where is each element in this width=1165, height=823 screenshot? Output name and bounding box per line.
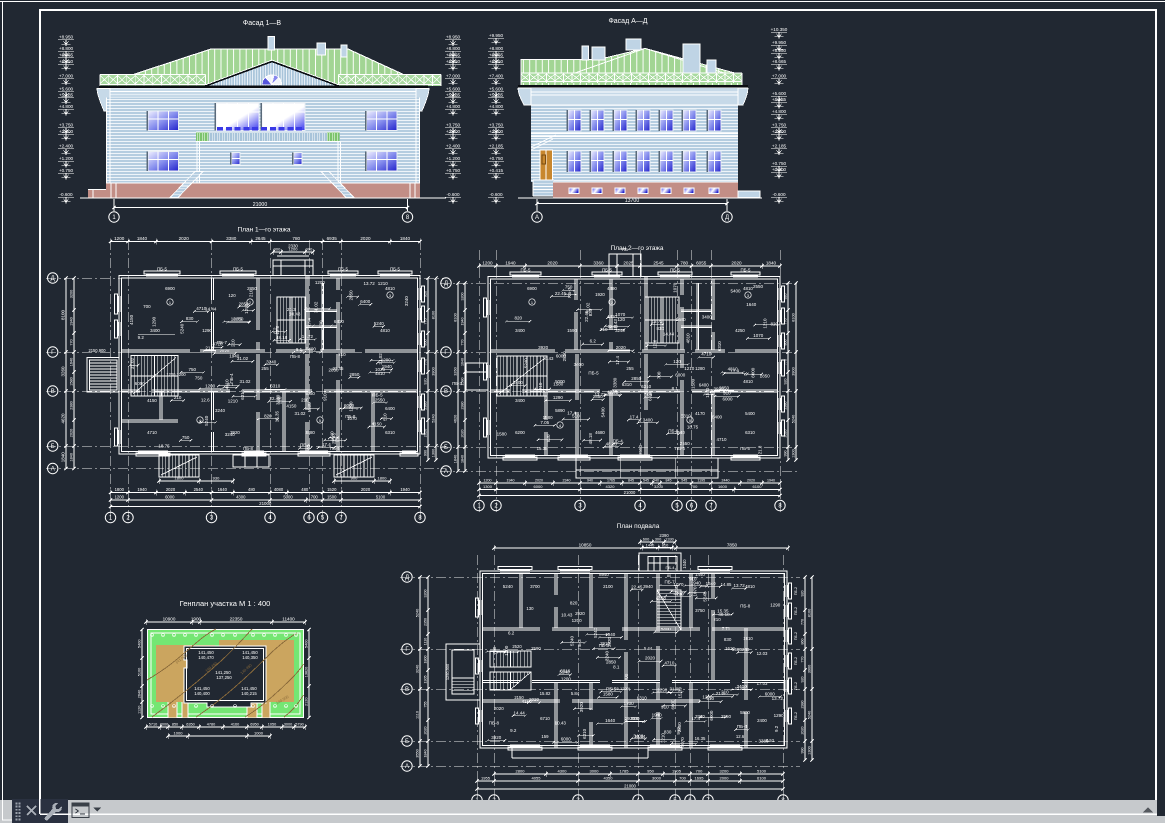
svg-text:3240: 3240 (416, 665, 420, 673)
svg-text:4710: 4710 (701, 352, 712, 357)
svg-text:120: 120 (673, 359, 681, 364)
svg-text:140,400: 140,400 (194, 691, 210, 696)
svg-text:920: 920 (784, 294, 788, 300)
svg-text:1290: 1290 (770, 603, 781, 608)
svg-text:+0.750: +0.750 (489, 156, 504, 161)
svg-text:ПБ-2: ПБ-2 (794, 657, 798, 665)
svg-text:1200: 1200 (624, 701, 635, 706)
svg-text:21.3: 21.3 (205, 345, 214, 350)
svg-text:920: 920 (424, 378, 428, 384)
svg-text:15.35: 15.35 (717, 609, 729, 614)
svg-text:2020: 2020 (801, 727, 805, 735)
svg-text:3200: 3200 (720, 768, 730, 773)
svg-text:4390: 4390 (607, 286, 617, 291)
svg-text:2640: 2640 (138, 690, 142, 698)
svg-text:6310: 6310 (681, 413, 692, 418)
svg-text:ПБ-2: ПБ-2 (794, 587, 798, 595)
svg-text:9.2: 9.2 (138, 335, 145, 340)
svg-text:3240: 3240 (276, 394, 281, 405)
svg-text:+0.415: +0.415 (489, 168, 504, 173)
svg-text:5240: 5240 (593, 627, 598, 638)
svg-text:+4.800: +4.800 (59, 104, 74, 109)
svg-text:1290: 1290 (152, 316, 157, 327)
svg-text:1200: 1200 (572, 618, 583, 623)
svg-text:2020: 2020 (535, 478, 543, 482)
svg-text:А: А (51, 467, 55, 473)
svg-text:13.72: 13.72 (302, 334, 314, 339)
svg-text:3900: 3900 (432, 367, 436, 375)
svg-text:+8.050: +8.050 (489, 59, 504, 64)
svg-text:5400: 5400 (661, 627, 672, 632)
svg-text:700: 700 (632, 716, 640, 721)
svg-text:750: 750 (182, 435, 190, 440)
svg-text:4350: 4350 (604, 775, 614, 780)
svg-text:2020: 2020 (461, 430, 465, 438)
svg-text:1000: 1000 (254, 730, 264, 735)
svg-text:1070: 1070 (672, 282, 677, 293)
svg-text:21000: 21000 (624, 490, 636, 495)
svg-text:6310: 6310 (648, 390, 653, 401)
svg-text:1290: 1290 (774, 713, 785, 718)
svg-text:210: 210 (230, 339, 235, 347)
svg-text:3: 3 (389, 293, 391, 298)
svg-text:1305: 1305 (424, 676, 428, 684)
svg-text:21.3: 21.3 (757, 445, 762, 454)
svg-text:8.1: 8.1 (672, 386, 679, 391)
svg-text:12.6: 12.6 (201, 398, 210, 403)
svg-text:480: 480 (301, 487, 309, 492)
svg-text:14.44: 14.44 (205, 307, 217, 312)
svg-text:31.02: 31.02 (130, 357, 135, 369)
svg-text:1640: 1640 (461, 358, 465, 366)
svg-text:6400: 6400 (712, 414, 723, 419)
svg-text:ПБ-5: ПБ-5 (338, 267, 348, 272)
svg-text:1440: 1440 (695, 572, 705, 577)
svg-text:120: 120 (228, 293, 236, 298)
svg-text:18.75: 18.75 (607, 390, 619, 395)
svg-text:ПБ-8: ПБ-8 (243, 446, 253, 451)
svg-text:7.05: 7.05 (540, 420, 549, 425)
svg-text:830: 830 (724, 637, 732, 642)
svg-text:2025: 2025 (623, 260, 634, 265)
svg-text:4150: 4150 (147, 398, 157, 403)
svg-text:22350: 22350 (230, 616, 243, 621)
svg-text:6000: 6000 (670, 699, 675, 710)
svg-text:6310: 6310 (641, 384, 652, 389)
svg-text:3: 3 (747, 293, 749, 298)
svg-text:910: 910 (676, 727, 681, 735)
svg-text:5.44: 5.44 (644, 646, 653, 651)
svg-text:4780: 4780 (207, 722, 215, 726)
svg-text:4620: 4620 (454, 415, 458, 423)
svg-text:1200: 1200 (482, 260, 493, 265)
svg-text:ПБ-4: ПБ-4 (665, 565, 675, 570)
svg-text:830: 830 (664, 730, 672, 735)
svg-text:2: 2 (611, 300, 613, 305)
svg-text:6000: 6000 (135, 381, 146, 386)
svg-text:6310: 6310 (270, 384, 281, 389)
svg-text:3380: 3380 (612, 377, 617, 388)
svg-text:3400: 3400 (737, 684, 748, 689)
svg-text:140,350: 140,350 (242, 655, 258, 660)
svg-text:1070: 1070 (680, 737, 685, 748)
svg-text:6950: 6950 (250, 722, 258, 726)
svg-text:Б: Б (444, 445, 448, 451)
svg-text:700: 700 (656, 371, 661, 379)
svg-text:6.2: 6.2 (508, 631, 515, 636)
svg-text:6100: 6100 (753, 484, 763, 489)
svg-text:1300: 1300 (792, 449, 796, 457)
svg-text:1210: 1210 (378, 281, 389, 286)
svg-text:3000: 3000 (160, 722, 168, 726)
svg-text:770: 770 (784, 319, 788, 325)
svg-text:5400: 5400 (305, 640, 309, 648)
svg-text:21000: 21000 (624, 783, 636, 788)
svg-text:+5.600: +5.600 (489, 87, 504, 92)
svg-text:ПБ: ПБ (622, 247, 628, 252)
svg-text:1940: 1940 (507, 478, 515, 482)
svg-text:+3.750: +3.750 (489, 123, 504, 128)
svg-text:1900: 1900 (191, 616, 202, 621)
svg-text:1800: 1800 (115, 487, 125, 492)
svg-text:3400: 3400 (150, 328, 160, 333)
svg-text:1000: 1000 (174, 730, 184, 735)
svg-text:2400: 2400 (757, 718, 767, 723)
svg-text:48.18: 48.18 (276, 335, 288, 340)
svg-text:План 2—го этажа: План 2—го этажа (611, 245, 664, 252)
svg-text:+0.000: +0.000 (772, 167, 787, 172)
svg-text:6350: 6350 (186, 722, 194, 726)
svg-text:4150: 4150 (286, 404, 297, 409)
svg-text:990: 990 (424, 450, 428, 456)
svg-text:4710: 4710 (147, 430, 157, 435)
svg-text:545: 545 (643, 478, 649, 482)
svg-text:14.85: 14.85 (721, 582, 732, 587)
svg-text:ПБ-2: ПБ-2 (794, 632, 798, 640)
svg-text:7.71: 7.71 (722, 626, 731, 631)
svg-text:22.45: 22.45 (584, 310, 589, 322)
svg-text:1840: 1840 (424, 750, 428, 758)
svg-text:990: 990 (784, 451, 788, 457)
svg-text:+7.400: +7.400 (489, 74, 504, 79)
svg-text:480: 480 (248, 487, 256, 492)
svg-text:ПБ-5: ПБ-5 (588, 371, 599, 376)
svg-text:1040: 1040 (682, 559, 687, 569)
svg-text:830: 830 (657, 326, 665, 331)
svg-text:5: 5 (319, 418, 321, 423)
svg-text:3380: 3380 (758, 739, 769, 744)
svg-text:+3.000: +3.000 (772, 129, 787, 134)
svg-text:31.02: 31.02 (669, 687, 681, 692)
svg-text:3000: 3000 (590, 768, 600, 773)
svg-text:17.4: 17.4 (630, 414, 639, 419)
svg-text:3920: 3920 (579, 702, 584, 713)
svg-text:8.1: 8.1 (613, 664, 620, 669)
svg-text:1300: 1300 (808, 746, 812, 754)
svg-text:1500: 1500 (327, 494, 337, 499)
svg-text:860: 860 (424, 339, 428, 345)
svg-text:+2.185: +2.185 (772, 144, 787, 149)
svg-text:4810: 4810 (224, 379, 229, 390)
svg-text:1940: 1940 (461, 318, 465, 326)
svg-text:1640: 1640 (218, 487, 228, 492)
svg-text:5240: 5240 (204, 415, 209, 426)
svg-text:10850: 10850 (579, 542, 592, 547)
svg-text:3920: 3920 (538, 345, 549, 350)
svg-text:2550: 2550 (375, 397, 386, 402)
svg-text:1110: 1110 (424, 638, 428, 645)
svg-text:1200: 1200 (115, 494, 125, 499)
svg-text:4150: 4150 (129, 314, 134, 325)
svg-text:4160: 4160 (231, 722, 239, 726)
svg-text:1580: 1580 (461, 378, 465, 386)
svg-text:+5.185: +5.185 (489, 93, 504, 98)
svg-text:5.84: 5.84 (571, 691, 580, 696)
svg-text:4150: 4150 (522, 699, 533, 704)
svg-text:1200: 1200 (504, 645, 509, 656)
svg-text:2380: 2380 (70, 401, 74, 409)
svg-text:12.6: 12.6 (736, 734, 745, 739)
svg-text:3400: 3400 (574, 362, 585, 367)
svg-text:+5.185: +5.185 (446, 93, 461, 98)
svg-text:1580: 1580 (690, 378, 695, 389)
svg-text:ПБ-5: ПБ-5 (157, 267, 167, 272)
svg-text:В: В (51, 389, 55, 395)
svg-text:Д: Д (444, 281, 448, 287)
svg-text:3940: 3940 (643, 584, 653, 589)
svg-text:2020: 2020 (179, 236, 190, 241)
svg-text:1765: 1765 (607, 478, 615, 482)
svg-text:1840: 1840 (70, 453, 74, 461)
svg-text:2850: 2850 (349, 290, 354, 301)
svg-text:1905: 1905 (672, 768, 682, 773)
svg-text:770: 770 (801, 619, 805, 625)
svg-text:1070: 1070 (375, 367, 386, 372)
svg-text:6710: 6710 (540, 716, 550, 721)
svg-text:1210: 1210 (763, 318, 768, 329)
svg-text:Д: Д (51, 276, 55, 282)
svg-text:2540: 2540 (194, 487, 204, 492)
svg-text:+8.950: +8.950 (446, 35, 461, 40)
svg-text:4300: 4300 (236, 494, 246, 499)
svg-text:2020: 2020 (424, 429, 428, 437)
svg-text:3000: 3000 (284, 722, 292, 726)
svg-text:8100: 8100 (432, 311, 436, 319)
svg-text:+7.000: +7.000 (772, 74, 787, 79)
svg-text:2020: 2020 (731, 260, 742, 265)
svg-text:900: 900 (306, 246, 313, 251)
svg-text:Б: Б (51, 444, 55, 450)
svg-text:5400: 5400 (306, 347, 317, 352)
svg-text:5400: 5400 (730, 288, 741, 293)
svg-text:3200: 3200 (461, 293, 465, 301)
svg-text:2545: 2545 (653, 260, 664, 265)
svg-text:920: 920 (424, 291, 428, 297)
svg-text:830: 830 (318, 320, 323, 328)
svg-text:2150,900: 2150,900 (88, 348, 106, 353)
svg-text:3360: 3360 (593, 260, 604, 265)
svg-text:3400: 3400 (515, 328, 525, 333)
svg-text:1200,1200: 1200,1200 (166, 372, 186, 377)
svg-text:ПБ-5: ПБ-5 (390, 267, 400, 272)
svg-text:159: 159 (541, 734, 549, 739)
svg-text:+3.000: +3.000 (446, 129, 461, 134)
svg-text:6100: 6100 (757, 775, 767, 780)
svg-text:+3.750: +3.750 (59, 123, 74, 128)
svg-text:750: 750 (189, 367, 197, 372)
svg-text:План подвала: План подвала (617, 523, 660, 530)
svg-text:2020: 2020 (166, 487, 176, 492)
svg-text:2380: 2380 (784, 402, 788, 410)
svg-text:5710: 5710 (149, 722, 157, 726)
svg-text:140,470: 140,470 (198, 655, 214, 660)
svg-text:2920: 2920 (575, 611, 585, 616)
svg-text:5000: 5000 (283, 494, 293, 499)
svg-text:845: 845 (628, 478, 634, 482)
svg-text:17.4: 17.4 (615, 356, 620, 365)
svg-text:1940: 1940 (505, 260, 516, 265)
svg-text:2645: 2645 (255, 236, 266, 241)
svg-text:+8.665: +8.665 (489, 53, 504, 58)
svg-text:3750: 3750 (695, 608, 705, 613)
svg-text:+5.600: +5.600 (59, 87, 74, 92)
svg-text:750: 750 (195, 376, 203, 381)
svg-text:210: 210 (721, 689, 729, 694)
svg-text:4055: 4055 (532, 775, 542, 780)
svg-text:1940: 1940 (691, 580, 702, 585)
svg-text:3900: 3900 (808, 665, 812, 673)
svg-text:2350: 2350 (424, 618, 428, 626)
svg-text:2020: 2020 (424, 727, 428, 735)
svg-text:ПБ-5: ПБ-5 (521, 268, 531, 273)
svg-text:8100: 8100 (792, 313, 796, 321)
svg-text:+4.800: +4.800 (489, 104, 504, 109)
svg-text:6900: 6900 (527, 286, 537, 291)
svg-text:1640: 1640 (70, 358, 74, 366)
svg-text:940: 940 (587, 478, 593, 482)
svg-text:48.18: 48.18 (588, 433, 593, 445)
svg-text:2020: 2020 (361, 487, 371, 492)
svg-text:2020: 2020 (547, 260, 558, 265)
svg-text:В: В (405, 687, 409, 693)
svg-text:1290: 1290 (244, 303, 249, 314)
svg-text:1940: 1940 (400, 487, 410, 492)
svg-text:1800: 1800 (424, 656, 428, 664)
svg-text:4300: 4300 (558, 768, 568, 773)
svg-text:2330: 2330 (288, 244, 298, 249)
svg-text:1200: 1200 (561, 676, 572, 681)
svg-text:1810: 1810 (743, 636, 753, 641)
svg-text:+0.750: +0.750 (59, 168, 74, 173)
svg-text:ПБ-8: ПБ-8 (489, 721, 500, 726)
svg-text:2850: 2850 (719, 385, 730, 390)
svg-text:10.43: 10.43 (543, 356, 554, 361)
svg-text:5240: 5240 (180, 323, 185, 334)
svg-text:2020: 2020 (360, 236, 371, 241)
svg-text:5240: 5240 (432, 414, 436, 422)
svg-text:6200: 6200 (515, 430, 525, 435)
svg-text:18.75: 18.75 (687, 425, 699, 430)
svg-text:6310: 6310 (637, 696, 648, 701)
svg-text:545: 545 (681, 478, 687, 482)
svg-text:1200: 1200 (315, 280, 326, 285)
svg-text:6400: 6400 (385, 406, 395, 411)
svg-text:1200: 1200 (114, 236, 125, 241)
svg-text:6400: 6400 (360, 299, 371, 304)
svg-text:+7.000: +7.000 (446, 74, 461, 79)
svg-text:4680: 4680 (595, 430, 605, 435)
svg-text:4810: 4810 (745, 584, 755, 589)
svg-text:21000: 21000 (253, 202, 268, 208)
svg-text:+3.000: +3.000 (489, 129, 504, 134)
svg-text:2390: 2390 (659, 533, 669, 538)
svg-text:12.6: 12.6 (275, 325, 280, 334)
svg-text:1580: 1580 (497, 431, 508, 436)
svg-text:+4.800: +4.800 (446, 104, 461, 109)
svg-text:6000: 6000 (765, 691, 776, 696)
svg-text:3400: 3400 (702, 315, 713, 320)
svg-text:12.03: 12.03 (757, 651, 768, 656)
svg-text:510: 510 (383, 413, 388, 421)
svg-text:6000: 6000 (750, 367, 755, 378)
svg-text:31.02: 31.02 (314, 301, 319, 313)
svg-text:8940: 8940 (599, 572, 609, 577)
svg-text:2550: 2550 (680, 441, 691, 446)
svg-text:1940: 1940 (70, 317, 74, 325)
svg-text:+5.600: +5.600 (446, 87, 461, 92)
svg-text:48.18: 48.18 (606, 441, 618, 446)
svg-text:2850: 2850 (631, 376, 642, 381)
svg-text:16.35: 16.35 (695, 736, 706, 741)
svg-text:920: 920 (801, 677, 805, 683)
svg-text:ПБ-5: ПБ-5 (233, 267, 243, 272)
svg-text:22.45: 22.45 (631, 584, 643, 589)
svg-text:ПБ-3: ПБ-3 (577, 639, 582, 650)
svg-text:14.44: 14.44 (663, 332, 675, 337)
svg-text:1940: 1940 (767, 478, 775, 482)
svg-text:920: 920 (801, 591, 805, 597)
svg-text:+9.950: +9.950 (772, 40, 787, 45)
svg-text:+7.000: +7.000 (59, 74, 74, 79)
svg-text:6935: 6935 (327, 236, 338, 241)
svg-text:+8.800: +8.800 (446, 46, 461, 51)
svg-text:1: 1 (169, 300, 171, 305)
svg-text:ПБ-5: ПБ-5 (670, 268, 680, 273)
svg-text:ПБ-5: ПБ-5 (602, 268, 612, 273)
svg-text:3260: 3260 (454, 367, 458, 375)
svg-text:10.43: 10.43 (555, 720, 567, 725)
svg-text:920: 920 (784, 379, 788, 385)
svg-text:ПБ-5: ПБ-5 (372, 393, 383, 398)
svg-text:2590: 2590 (531, 646, 541, 651)
svg-text:+8.665: +8.665 (59, 53, 74, 58)
svg-text:15.35: 15.35 (275, 410, 280, 422)
svg-text:1290: 1290 (553, 395, 564, 400)
svg-text:ПБ-5: ПБ-5 (606, 686, 617, 691)
svg-text:1840: 1840 (454, 455, 458, 463)
svg-text:5240: 5240 (523, 358, 528, 369)
svg-text:6310: 6310 (717, 341, 722, 352)
svg-text:3900: 3900 (792, 367, 796, 375)
svg-text:22.45: 22.45 (555, 291, 567, 296)
svg-text:2020: 2020 (70, 429, 74, 437)
svg-text:5400: 5400 (601, 407, 606, 418)
svg-text:4170: 4170 (695, 411, 705, 416)
svg-text:6000: 6000 (165, 494, 175, 499)
svg-text:13820: 13820 (305, 667, 309, 678)
svg-text:750: 750 (492, 646, 497, 654)
svg-text:5100: 5100 (138, 668, 142, 676)
